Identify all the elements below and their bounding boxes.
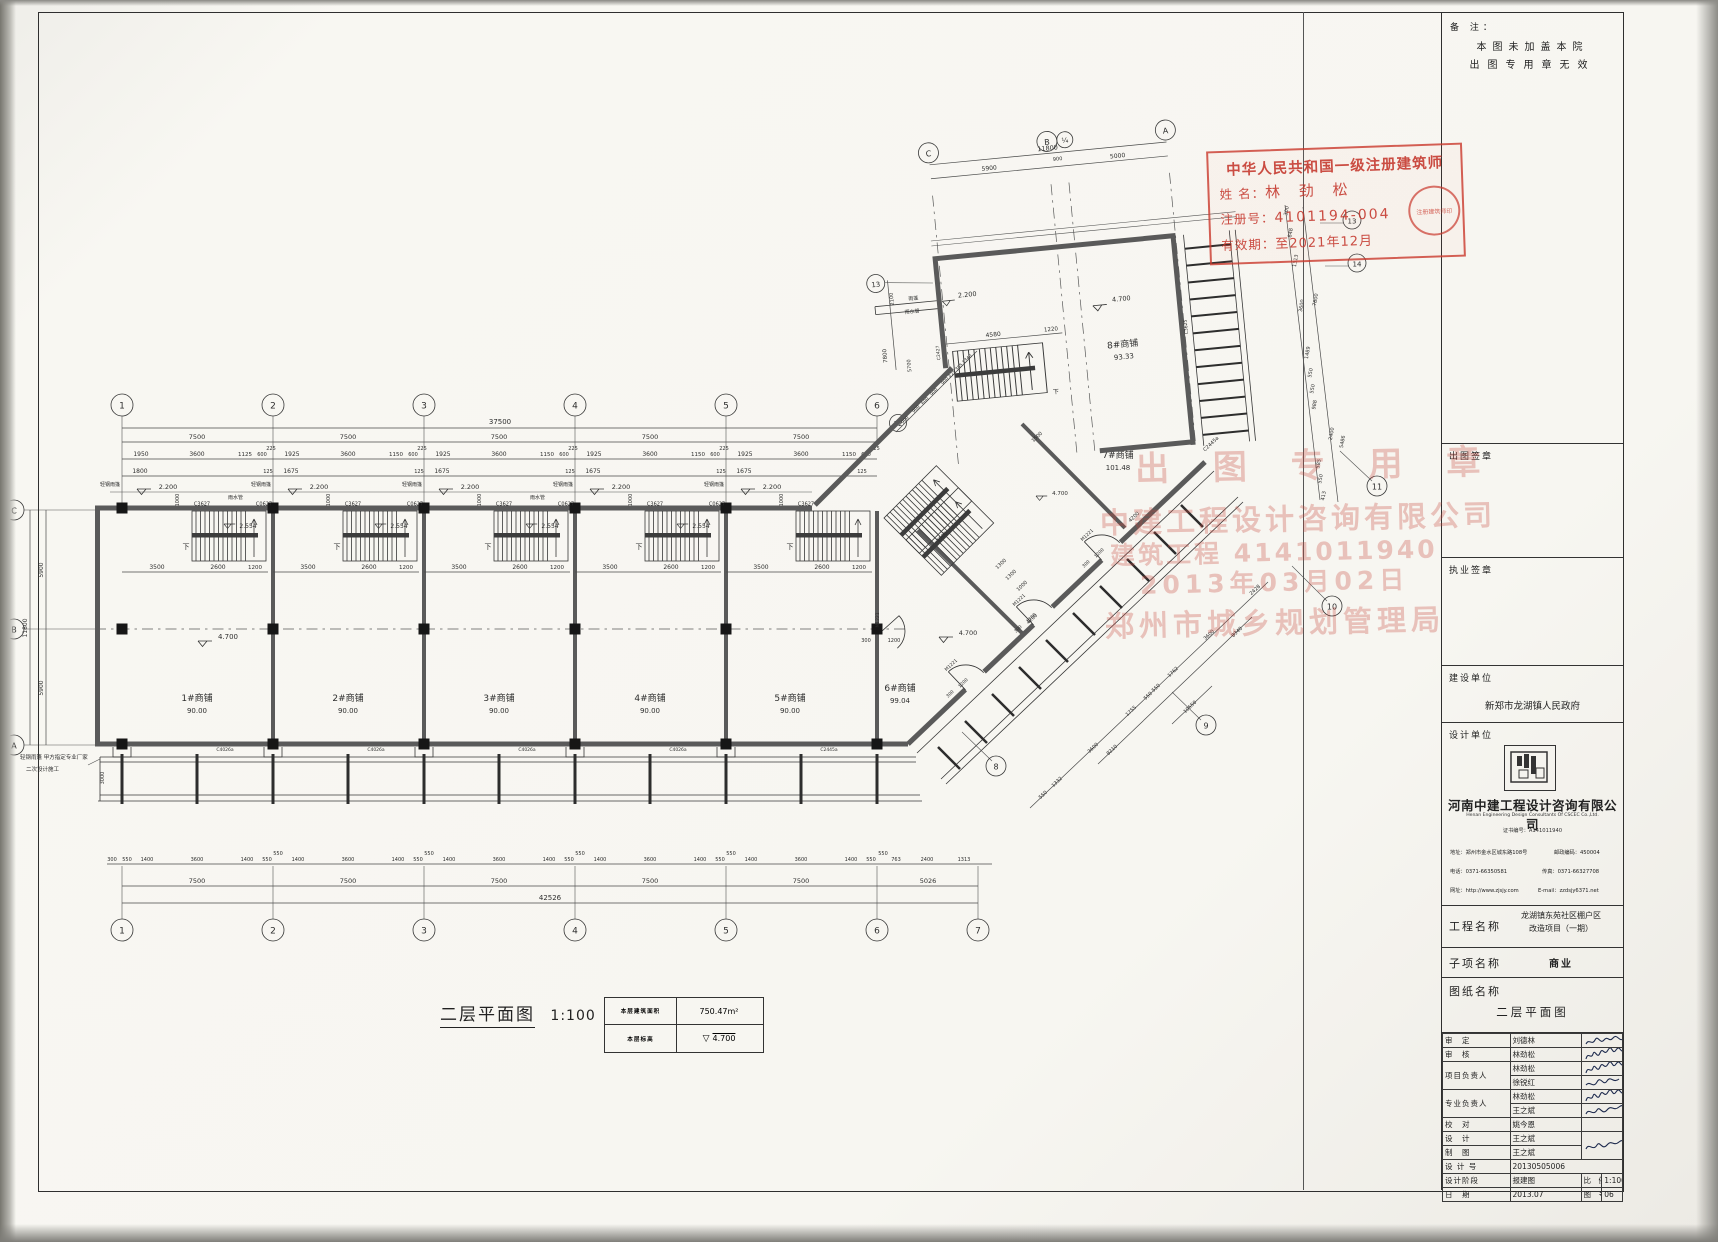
plan-title: 二层平面图 bbox=[440, 1005, 535, 1028]
sig-role: 审 定 bbox=[1443, 1034, 1511, 1048]
stamp-reg-no: 4101194-004 bbox=[1274, 206, 1391, 226]
remark-label: 备 注： bbox=[1450, 20, 1496, 33]
scan-edge bbox=[0, 1224, 1718, 1242]
registered-architect-stamp: 中华人民共和国一级注册建筑师 姓 名：林 劲 松 注册号：4101194-004… bbox=[1206, 143, 1466, 266]
stamp-valid: 至2021年12月 bbox=[1275, 234, 1373, 252]
stamp-valid-label: 有效期： bbox=[1221, 236, 1276, 253]
project-name-section: 工程名称 龙湖镇东苑社区棚户区 改造项目（一期） bbox=[1442, 905, 1623, 947]
design-no-label: 设 计 号 bbox=[1443, 1160, 1511, 1174]
client-label: 建设单位 bbox=[1449, 671, 1493, 684]
signature-cell bbox=[1581, 1034, 1622, 1048]
faint-stamp-line: 出 图 专 用 章 bbox=[1135, 434, 1497, 491]
area-summary-table: 本层建筑面积 750.47m² 本层标高 ▽4.700 bbox=[604, 997, 764, 1053]
company-fax: 传真：0371-66327708 bbox=[1542, 868, 1599, 875]
elevation-value: 4.700 bbox=[713, 1034, 736, 1043]
remark-line: 本图未加盖本院 bbox=[1442, 38, 1623, 53]
scale-label: 比 例 bbox=[1581, 1174, 1602, 1188]
project-label: 工程名称 bbox=[1449, 918, 1501, 934]
remark-section: 备 注： 本图未加盖本院 出图专用章无效 bbox=[1442, 12, 1623, 443]
practice-seal-section: 执业签章 bbox=[1442, 557, 1623, 665]
sig-role: 项目负责人 bbox=[1443, 1062, 1511, 1090]
practice-label: 执业签章 bbox=[1449, 563, 1493, 576]
plan-scale: 1:100 bbox=[550, 1008, 595, 1024]
sig-role: 设 计 bbox=[1443, 1132, 1511, 1146]
date-label: 日 期 bbox=[1443, 1188, 1511, 1202]
dim-label: 11800 bbox=[22, 618, 29, 637]
stamp-name-label: 姓 名： bbox=[1219, 185, 1265, 202]
project-name-line2: 改造项目（一期） bbox=[1502, 923, 1620, 934]
plan-caption: 二层平面图 1:100 bbox=[440, 1000, 596, 1025]
sig-role: 专业负责人 bbox=[1443, 1090, 1511, 1118]
sig-name: 刘德林 bbox=[1510, 1034, 1581, 1048]
project-name-line1: 龙湖镇东苑社区棚户区 bbox=[1502, 910, 1620, 921]
signature-cell bbox=[1581, 1132, 1622, 1160]
stamp-title: 中华人民共和国一级注册建筑师 bbox=[1208, 151, 1461, 181]
stage-label: 设计阶段 bbox=[1443, 1174, 1511, 1188]
fig-no-label: 图 号 bbox=[1581, 1188, 1602, 1202]
company-tel: 电话：0371-66350581 bbox=[1450, 868, 1507, 875]
level-symbol-icon: ▽ bbox=[703, 1034, 710, 1044]
signature-table: 审 定刘德林 审 核林劲松 项目负责人林劲松 徐锐红 专业负责人林劲松 王之斌 … bbox=[1442, 1033, 1623, 1202]
round-seal-icon: 注册建筑师印 bbox=[1407, 185, 1461, 237]
client-name: 新郑市龙湖镇人民政府 bbox=[1442, 698, 1623, 712]
sig-name: 王之斌 bbox=[1510, 1132, 1581, 1146]
company-email: E-mail：zzdsjy6371.net bbox=[1538, 887, 1599, 894]
date-value: 2013.07 bbox=[1510, 1188, 1581, 1202]
scan-edge bbox=[1696, 0, 1718, 1242]
signature-table-section: 审 定刘德林 审 核林劲松 项目负责人林劲松 徐锐红 专业负责人林劲松 王之斌 … bbox=[1442, 1032, 1623, 1190]
stage-value: 报建图 bbox=[1510, 1174, 1581, 1188]
sig-name: 王之斌 bbox=[1510, 1104, 1581, 1118]
client-section: 建设单位 新郑市龙湖镇人民政府 bbox=[1442, 665, 1623, 722]
drawing-name: 二层平面图 bbox=[1442, 1004, 1623, 1020]
signature-cell bbox=[1581, 1076, 1622, 1090]
signature-cell bbox=[1581, 1090, 1622, 1104]
drawing-name-label: 图纸名称 bbox=[1449, 983, 1501, 999]
sig-name: 林劲松 bbox=[1510, 1062, 1581, 1076]
fig-no-value: 06 bbox=[1602, 1188, 1623, 1202]
drawing-name-section: 图纸名称 二层平面图 bbox=[1442, 977, 1623, 1032]
scan-edge bbox=[0, 0, 16, 1242]
sig-name: 王之斌 bbox=[1510, 1146, 1581, 1160]
company-address: 地址：郑州市金水区城东路108号 bbox=[1450, 849, 1527, 856]
signature-cell bbox=[1581, 1062, 1622, 1076]
company-name-en: Henan Engineering Design Consultants Of … bbox=[1442, 813, 1623, 818]
company-cert: 证书编号：A141011940 bbox=[1442, 827, 1623, 834]
faint-stamp-line: 2013年03月02日 bbox=[1140, 560, 1410, 602]
signature-cell bbox=[1581, 1118, 1622, 1132]
scale-value: 1:100 bbox=[1602, 1174, 1623, 1188]
sub-project-label: 子项名称 bbox=[1449, 955, 1501, 971]
stamp-name: 林 劲 松 bbox=[1265, 180, 1355, 201]
sig-role: 审 核 bbox=[1443, 1048, 1511, 1062]
stamp-reg-label: 注册号： bbox=[1220, 210, 1275, 227]
sig-role: 校 对 bbox=[1443, 1118, 1511, 1132]
signature-cell bbox=[1581, 1104, 1622, 1118]
sig-role: 制 图 bbox=[1443, 1146, 1511, 1160]
signature-cell bbox=[1581, 1048, 1622, 1062]
area-label: 本层建筑面积 bbox=[605, 998, 677, 1024]
company-web: 网址：http://www.zjsjy.com bbox=[1450, 887, 1519, 894]
sig-name: 徐锐红 bbox=[1510, 1076, 1581, 1090]
sub-project-name: 商业 bbox=[1502, 955, 1620, 970]
design-no: 20130505006 bbox=[1510, 1160, 1623, 1174]
elevation-label: 本层标高 bbox=[605, 1025, 677, 1052]
designer-section: 设计单位 河南中建工程设计咨询有限公司 Henan Engineering De… bbox=[1442, 722, 1623, 905]
area-value: 750.47m² bbox=[677, 998, 761, 1024]
sig-name: 林劲松 bbox=[1510, 1090, 1581, 1104]
title-block: 备 注： 本图未加盖本院 出图专用章无效 出图签章 执业签章 建设单位 新郑市龙… bbox=[1441, 12, 1623, 1190]
sig-name: 林劲松 bbox=[1510, 1048, 1581, 1062]
cscec-logo bbox=[1504, 745, 1556, 791]
faint-stamp-line: 郑州市城乡规划管理局 bbox=[1105, 596, 1446, 645]
remark-line: 出图专用章无效 bbox=[1442, 56, 1623, 71]
sub-project-section: 子项名称 商业 bbox=[1442, 947, 1623, 977]
designer-label: 设计单位 bbox=[1449, 728, 1493, 741]
company-postcode: 邮政编码：450004 bbox=[1554, 849, 1600, 856]
scan-edge bbox=[0, 0, 1718, 6]
scanned-drawing-sheet: 1 2 3 4 5 6 12 37500 7500 7500 7500 7500… bbox=[0, 0, 1718, 1242]
sig-name: 姚今恩 bbox=[1510, 1118, 1581, 1132]
